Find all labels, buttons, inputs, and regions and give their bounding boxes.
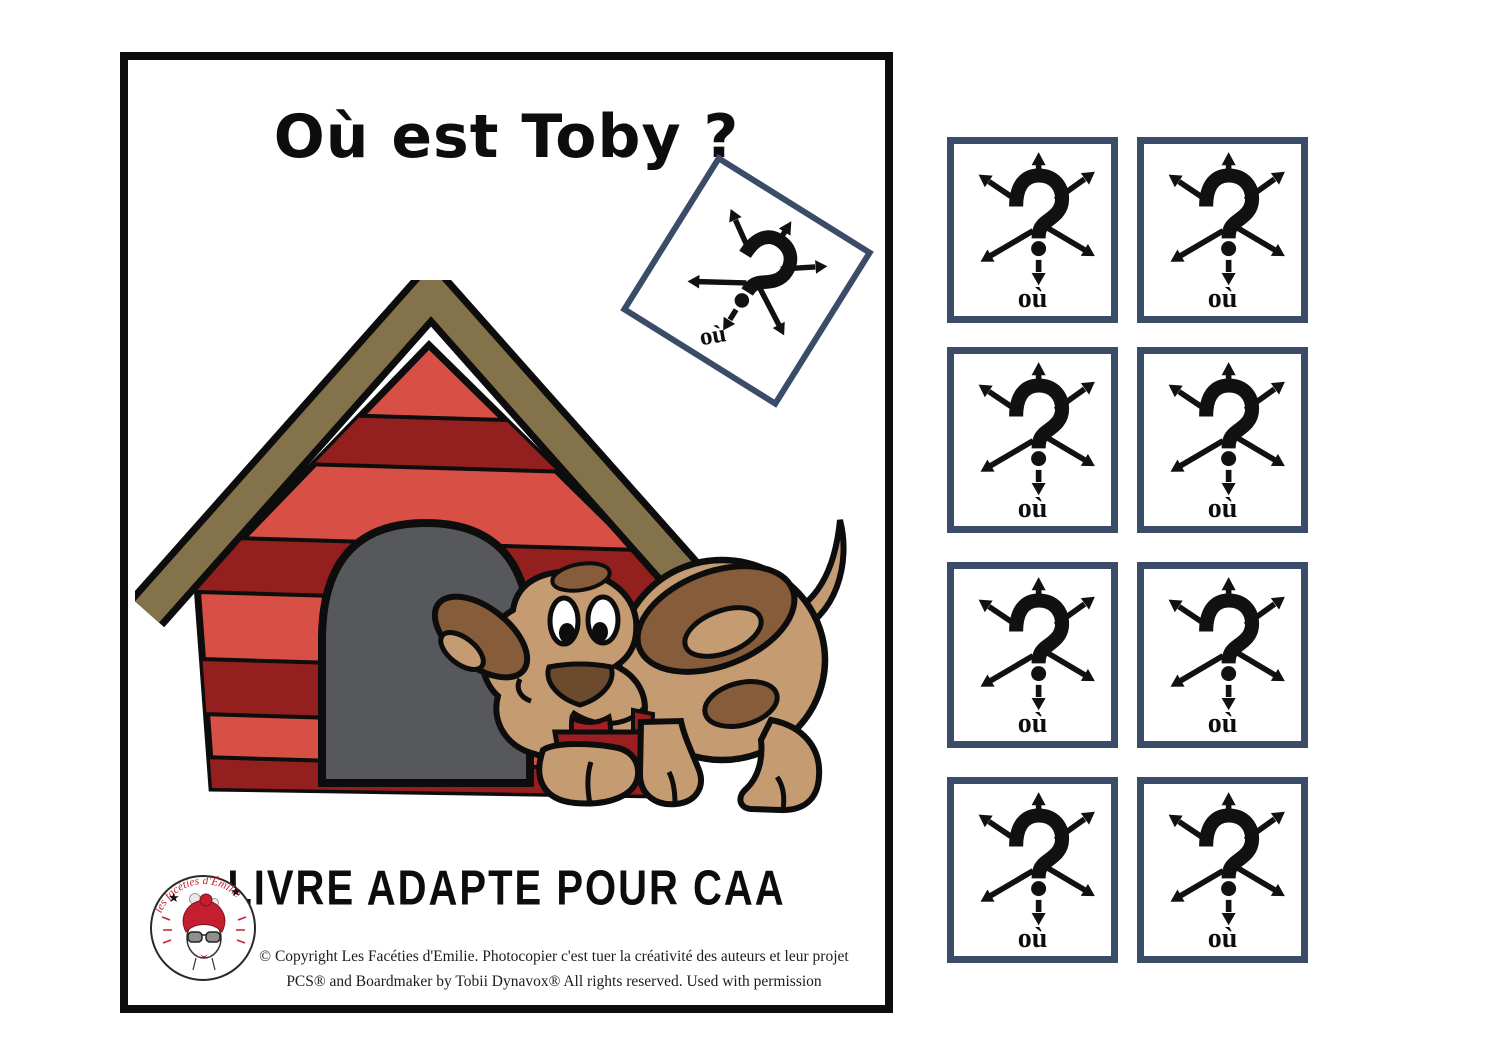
star-icon: ★ xyxy=(168,891,180,906)
card-label: où xyxy=(1144,925,1301,953)
where-card-3: où xyxy=(947,347,1118,533)
where-question-symbol-icon xyxy=(958,575,1108,716)
card-label: où xyxy=(1144,710,1301,738)
where-question-symbol-icon xyxy=(1148,360,1298,501)
where-question-symbol-icon xyxy=(1148,790,1298,931)
where-question-symbol-icon xyxy=(958,790,1108,931)
copyright-line-2: PCS® and Boardmaker by Tobii Dynavox® Al… xyxy=(224,969,884,994)
card-label: où xyxy=(954,285,1111,313)
where-card-7: où xyxy=(947,777,1118,963)
star-icon: ★ xyxy=(230,885,242,900)
card-label: où xyxy=(954,495,1111,523)
copyright-text: © Copyright Les Facéties d'Emilie. Photo… xyxy=(224,944,884,994)
where-question-symbol-icon xyxy=(1148,575,1298,716)
screenshot-root: Où est Toby ? où xyxy=(0,0,1500,1061)
book-cover-page: Où est Toby ? où xyxy=(120,52,893,1013)
where-card-5: où xyxy=(947,562,1118,748)
where-question-symbol-icon xyxy=(958,360,1108,501)
where-card-4: où xyxy=(1137,347,1308,533)
page-title: Où est Toby ? xyxy=(128,102,885,172)
doghouse-dog-illustration xyxy=(135,280,895,825)
card-label: où xyxy=(1144,495,1301,523)
where-question-symbol-icon xyxy=(1148,150,1298,291)
where-card-6: où xyxy=(1137,562,1308,748)
where-question-symbol-icon xyxy=(958,150,1108,291)
where-card-8: où xyxy=(1137,777,1308,963)
card-label: où xyxy=(1144,285,1301,313)
card-label: où xyxy=(954,710,1111,738)
card-label: où xyxy=(954,925,1111,953)
where-card-2: où xyxy=(1137,137,1308,323)
where-card-1: où xyxy=(947,137,1118,323)
copyright-line-1: © Copyright Les Facéties d'Emilie. Photo… xyxy=(224,944,884,969)
